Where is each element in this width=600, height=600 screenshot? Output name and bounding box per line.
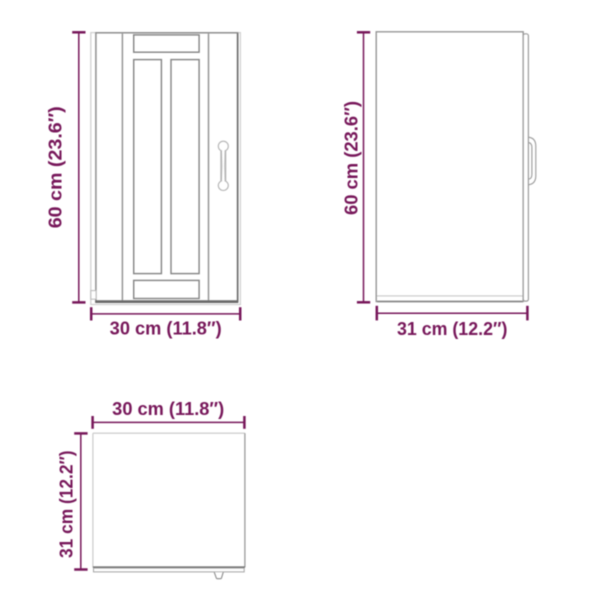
svg-text:60 cm (23.6″): 60 cm (23.6″) bbox=[342, 101, 362, 215]
svg-text:60 cm (23.6″): 60 cm (23.6″) bbox=[46, 106, 66, 228]
svg-text:30 cm (11.8″): 30 cm (11.8″) bbox=[112, 399, 224, 419]
svg-text:31 cm (12.2″): 31 cm (12.2″) bbox=[57, 450, 77, 558]
svg-text:30 cm (11.8″): 30 cm (11.8″) bbox=[110, 318, 222, 338]
svg-text:31 cm (12.2″): 31 cm (12.2″) bbox=[397, 319, 508, 339]
